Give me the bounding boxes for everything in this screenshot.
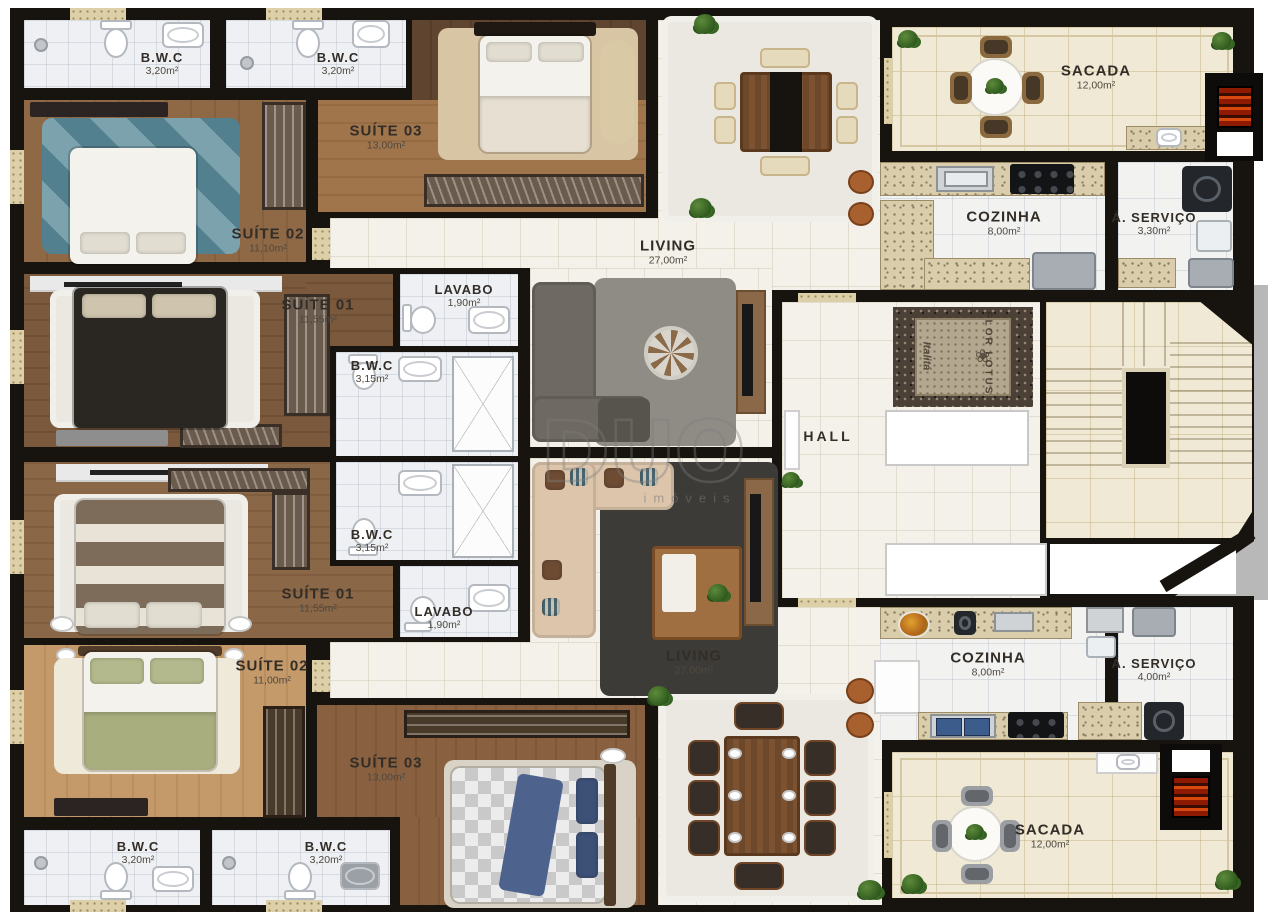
window-sill <box>266 900 322 912</box>
washing-machine <box>1182 166 1232 212</box>
place-setting <box>728 748 742 759</box>
bed-blanket <box>84 712 216 770</box>
dining-chair <box>690 742 718 774</box>
elevator-shaft-1 <box>885 410 1029 466</box>
plant <box>694 14 716 34</box>
toilet-tank <box>284 890 316 900</box>
bed-headboard <box>604 764 616 906</box>
door-sill <box>312 660 330 692</box>
shower-head-icon <box>34 38 48 52</box>
door-sill <box>312 228 330 260</box>
window-sill <box>10 520 24 574</box>
closet <box>262 102 306 210</box>
shower-box <box>452 356 514 452</box>
balcony-chair <box>980 116 1012 138</box>
shower-head-icon <box>34 856 48 870</box>
pillow <box>80 232 130 254</box>
plant <box>902 874 924 894</box>
stove <box>1008 712 1064 738</box>
desk <box>54 798 148 816</box>
room-label-suite03-bottom: SUÍTE 03 13,00m² <box>349 756 422 785</box>
plant <box>986 78 1004 94</box>
shower-box <box>452 464 514 558</box>
dining-chair <box>736 704 782 728</box>
bar-stool <box>846 712 874 738</box>
pillow <box>576 832 598 878</box>
plant <box>966 824 984 840</box>
pillow <box>150 658 204 684</box>
dining-chair <box>806 782 834 814</box>
room-label-suite02-bottom: SUÍTE 02 11,00m² <box>235 659 308 688</box>
room-label-bwc3-bottom: B.W.C 3,15m² <box>351 528 394 554</box>
sink <box>398 356 442 382</box>
room-label-suite02-top: SUÍTE 02 11,10m² <box>231 227 304 256</box>
room-label-lavabo-top: LAVABO 1,90m² <box>435 283 494 309</box>
balcony-sink <box>1156 128 1182 147</box>
toilet-tank <box>100 890 132 900</box>
plant <box>782 472 800 488</box>
sink <box>352 20 390 48</box>
closet <box>263 706 305 818</box>
pillow <box>152 294 216 318</box>
place-setting <box>728 790 742 801</box>
room-label-living-top: LIVING 27,00m² <box>640 239 696 268</box>
place-setting <box>782 832 796 843</box>
place-setting <box>728 832 742 843</box>
washing-machine <box>1144 702 1184 740</box>
dining-chair <box>736 864 782 888</box>
tray <box>662 554 696 612</box>
nightstand <box>228 616 252 632</box>
ceiling-fan-icon <box>644 326 698 380</box>
barbecue-niche <box>1217 132 1253 156</box>
tv-console <box>30 102 168 117</box>
stair-steps-left <box>1046 368 1122 468</box>
balcony-chair <box>961 786 993 806</box>
place-setting <box>782 790 796 801</box>
shower-head-icon <box>222 856 236 870</box>
window-sill <box>10 690 24 744</box>
room-label-sacada-top: SACADA 12,00m² <box>1061 64 1131 93</box>
room-label-suite03-top: SUÍTE 03 13,00m² <box>349 124 422 153</box>
laundry-basket <box>1196 220 1232 252</box>
utensil-tray <box>994 612 1034 632</box>
pillow <box>90 658 144 684</box>
toilet <box>410 306 436 334</box>
floorplan-canvas: FLOR LOTUS Italitá ❀ <box>0 0 1280 920</box>
closet <box>272 492 310 570</box>
laundry-counter <box>1078 702 1142 740</box>
dining-chair <box>690 822 718 854</box>
room-label-servico-top: Á. SERVIÇO 3,30m² <box>1112 211 1197 237</box>
stairwell-void <box>1122 368 1170 468</box>
small-appliance <box>954 611 976 635</box>
hall-console <box>784 410 800 470</box>
elevator-shaft-2 <box>885 543 1047 596</box>
room-label-cozinha-bottom: COZINHA 8,00m² <box>950 651 1025 680</box>
barbecue-niche <box>1172 750 1210 772</box>
plant <box>708 584 728 602</box>
fruit-plate <box>898 611 930 638</box>
dining-chair <box>714 116 736 144</box>
pillow <box>542 598 560 616</box>
room-label-hall: HALL <box>803 429 852 445</box>
room-label-bwc1-top: B.W.C 3,20m² <box>141 51 184 77</box>
sink <box>398 470 442 496</box>
room-label-lavabo-bottom: LAVABO 1,90m² <box>415 605 474 631</box>
pillow <box>576 778 598 824</box>
sink <box>162 22 204 48</box>
plant <box>1216 870 1238 890</box>
window-sill <box>70 900 126 912</box>
tv <box>742 304 753 396</box>
balcony-chair <box>932 820 952 852</box>
dining-chair <box>836 82 858 110</box>
soundbar <box>64 282 182 287</box>
plant <box>648 686 670 706</box>
pillow <box>542 560 562 580</box>
closet <box>404 710 630 738</box>
sink <box>340 862 380 890</box>
sink <box>152 866 194 892</box>
window-sill <box>10 330 24 384</box>
toilet <box>104 862 128 892</box>
balcony-sink <box>1116 754 1140 770</box>
door-sill <box>884 792 892 858</box>
bed-headboard <box>474 22 596 36</box>
staircase <box>1046 302 1252 538</box>
balcony-chair <box>950 72 972 104</box>
table-runner <box>770 72 802 152</box>
room-label-suite01-bottom: SUÍTE 01 11,55m² <box>281 587 354 616</box>
media-console <box>56 430 168 446</box>
shower-head-icon <box>240 56 254 70</box>
nightstand <box>600 748 626 764</box>
sink <box>468 306 510 334</box>
room-label-sacada-bottom: SACADA 12,00m² <box>1015 823 1085 852</box>
pillow <box>136 232 186 254</box>
dining-chair <box>836 116 858 144</box>
sink-basin <box>944 171 988 187</box>
closet <box>424 174 644 207</box>
laundry-counter <box>1118 258 1176 288</box>
watermark-tagline: imóveis <box>643 491 736 506</box>
dining-chair <box>690 782 718 814</box>
dining-chair <box>760 156 810 176</box>
room-label-bwc1-bottom: B.W.C 3,20m² <box>117 840 160 866</box>
room-label-bwc2-top: B.W.C 3,20m² <box>317 51 360 77</box>
stair-steps-right <box>1170 342 1252 468</box>
room-label-suite01-top: SUÍTE 01 11,55m² <box>281 298 354 327</box>
place-setting <box>782 748 796 759</box>
room-label-bwc3-top: B.W.C 3,15m² <box>351 359 394 385</box>
chaise <box>600 40 634 144</box>
plant <box>1212 32 1232 50</box>
room-label-servico-bottom: Á. SERVIÇO 4,00m² <box>1112 657 1197 683</box>
dryer <box>1132 607 1176 637</box>
plant <box>858 880 882 900</box>
stove <box>1010 164 1074 194</box>
lotus-icon: ❀ <box>975 346 990 367</box>
pillow <box>538 42 584 62</box>
dining-chair <box>714 82 736 110</box>
room-label-cozinha-top: COZINHA 8,00m² <box>966 210 1041 239</box>
window-sill <box>266 8 322 20</box>
bar-stool <box>846 678 874 704</box>
dining-chair <box>760 48 810 68</box>
door-sill <box>798 293 856 302</box>
dryer <box>1188 258 1234 288</box>
bed-blanket <box>480 96 590 152</box>
room-floor-corridor-top <box>330 218 658 268</box>
plant <box>898 30 918 48</box>
balcony-chair <box>961 864 993 884</box>
laundry-sink <box>1086 607 1124 633</box>
sink <box>468 584 510 612</box>
toilet <box>104 28 128 58</box>
laundry-basket <box>1086 636 1116 658</box>
window-sill <box>10 150 24 204</box>
barbecue-grill <box>1217 86 1253 128</box>
door-sill <box>884 58 892 124</box>
tv <box>750 494 761 602</box>
dining-chair <box>806 822 834 854</box>
plant <box>690 198 712 218</box>
room-label-living-bottom: LIVING 27,00m² <box>666 649 722 678</box>
watermark-logo: DUO <box>540 403 743 501</box>
pillow <box>84 602 140 628</box>
window-sill <box>70 8 126 20</box>
pillow <box>486 42 532 62</box>
stair-landing <box>1122 302 1170 366</box>
floor-brand-name: Italitá <box>920 342 932 371</box>
balcony-chair <box>980 36 1012 58</box>
pillow <box>82 294 146 318</box>
balcony-chair <box>1022 72 1044 104</box>
pillow <box>146 602 202 628</box>
exterior-strip <box>1254 285 1268 600</box>
sink-basin <box>964 718 990 736</box>
nightstand <box>50 616 74 632</box>
closet <box>168 468 310 492</box>
bar-stool <box>848 170 874 194</box>
bar-stool <box>848 202 874 226</box>
room-label-bwc2-bottom: B.W.C 3,20m² <box>305 840 348 866</box>
refrigerator <box>1032 252 1096 290</box>
door-sill <box>798 598 856 607</box>
toilet <box>288 862 312 892</box>
dining-chair <box>806 742 834 774</box>
sink-basin <box>936 718 962 736</box>
barbecue-grill <box>1172 776 1210 818</box>
kitchen-island <box>874 660 920 714</box>
kitchen-counter <box>924 258 1030 290</box>
